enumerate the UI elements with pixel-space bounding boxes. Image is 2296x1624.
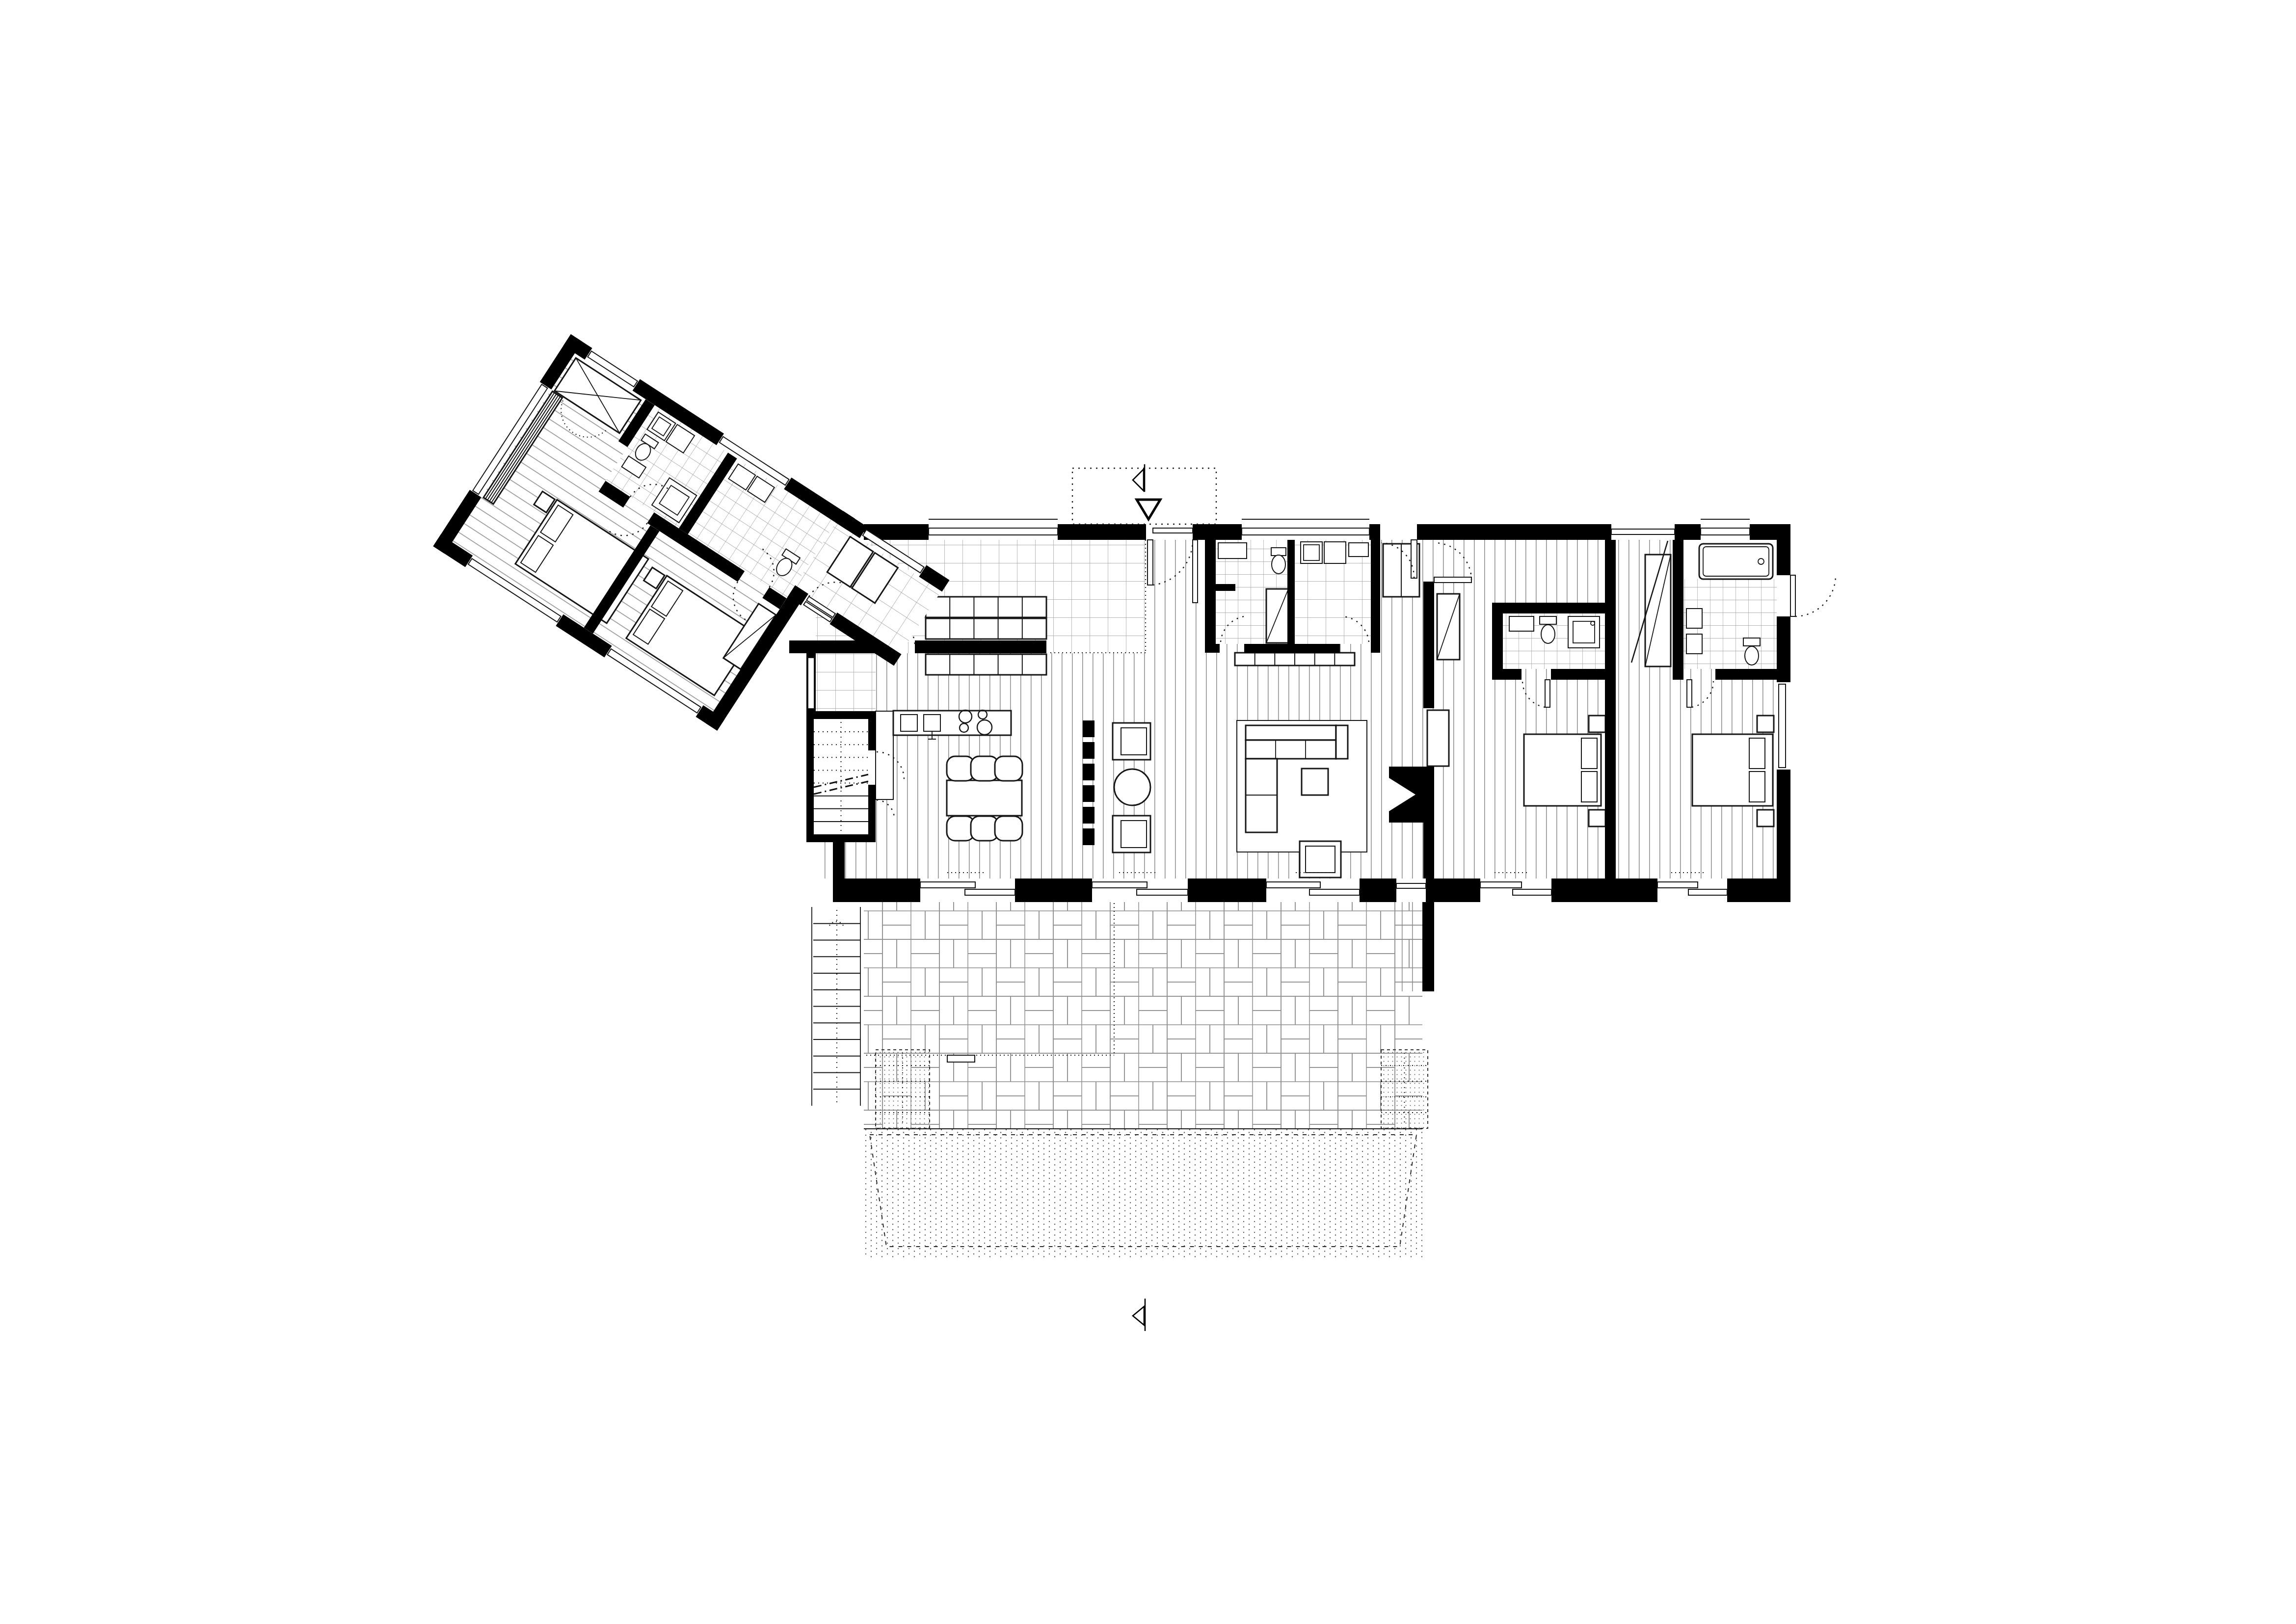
entry-door-leaf (1148, 540, 1153, 585)
shower (1568, 616, 1600, 648)
hall-sideboard (1235, 653, 1355, 666)
nightstand (1757, 716, 1774, 732)
pillow (1581, 772, 1597, 802)
deck-side-wall (1422, 902, 1434, 991)
washbasin (1349, 543, 1368, 557)
kitchen-sink (901, 715, 917, 731)
shelf-segment (1083, 720, 1095, 737)
side-table (1114, 769, 1150, 805)
toilet (1743, 638, 1760, 665)
tv-bench (1427, 710, 1449, 766)
pillow (1749, 738, 1765, 769)
window (929, 528, 1058, 535)
window (1779, 684, 1786, 768)
kitchen-counter (926, 654, 1046, 675)
utility-door-leaf (1411, 540, 1417, 578)
dining-table (947, 780, 1022, 816)
side-deck (1398, 902, 1422, 991)
bedroom-door-leaf (1434, 577, 1471, 583)
fireplace (1389, 767, 1434, 823)
tall-cabinet (1266, 589, 1288, 643)
kitchen-sink-2 (924, 715, 940, 731)
toilet (1540, 616, 1556, 643)
window (808, 658, 814, 709)
floor-plan-canvas: Ground-floor architectural plan, black a… (0, 0, 2296, 1624)
entrance-triangle (1137, 500, 1160, 519)
shelf-segment (1083, 742, 1095, 759)
washbasin (1686, 609, 1702, 628)
toilet (1271, 548, 1286, 574)
ensuite-door-leaf (1545, 680, 1550, 707)
shelf-segment (1083, 764, 1095, 780)
shelf-segment (1083, 828, 1095, 845)
nightstand (1589, 716, 1605, 732)
dining-chair (995, 756, 1022, 781)
nightstand (1589, 810, 1605, 826)
coffee-table (1302, 769, 1328, 795)
pillow (1581, 738, 1597, 769)
washbasin (1686, 634, 1702, 654)
dryer (1324, 542, 1346, 563)
glazed-door (1611, 529, 1675, 534)
bathtub (1699, 544, 1773, 579)
axis-flag-bottom (1133, 1299, 1145, 1331)
lawn (864, 1129, 1422, 1257)
outdoor-areas (812, 902, 1434, 1257)
ensuite-door-leaf (1687, 680, 1692, 707)
window (1701, 528, 1750, 535)
washbasin (1218, 543, 1247, 559)
terrace-paving (864, 902, 1422, 1129)
window (1242, 528, 1369, 535)
hall-cabinet-row-lower (926, 618, 1046, 639)
wardrobe (1645, 555, 1671, 666)
vestibule-screen (1193, 540, 1198, 603)
side-door-leaf (1790, 575, 1795, 616)
west-garden-stair (813, 910, 860, 1103)
washbasin (1509, 616, 1534, 631)
entry-threshold (1153, 528, 1193, 533)
pillow (1749, 772, 1765, 802)
dining-chair (995, 816, 1022, 841)
hall-cabinet-row-upper (926, 597, 1046, 617)
doormat (947, 1055, 975, 1062)
nightstand (1757, 810, 1774, 826)
shelf-segment (1083, 785, 1095, 802)
pantry-passage (876, 711, 893, 799)
wardrobe (1437, 594, 1460, 660)
shelf-segment (1083, 807, 1095, 824)
side-door-swing (1795, 576, 1836, 616)
